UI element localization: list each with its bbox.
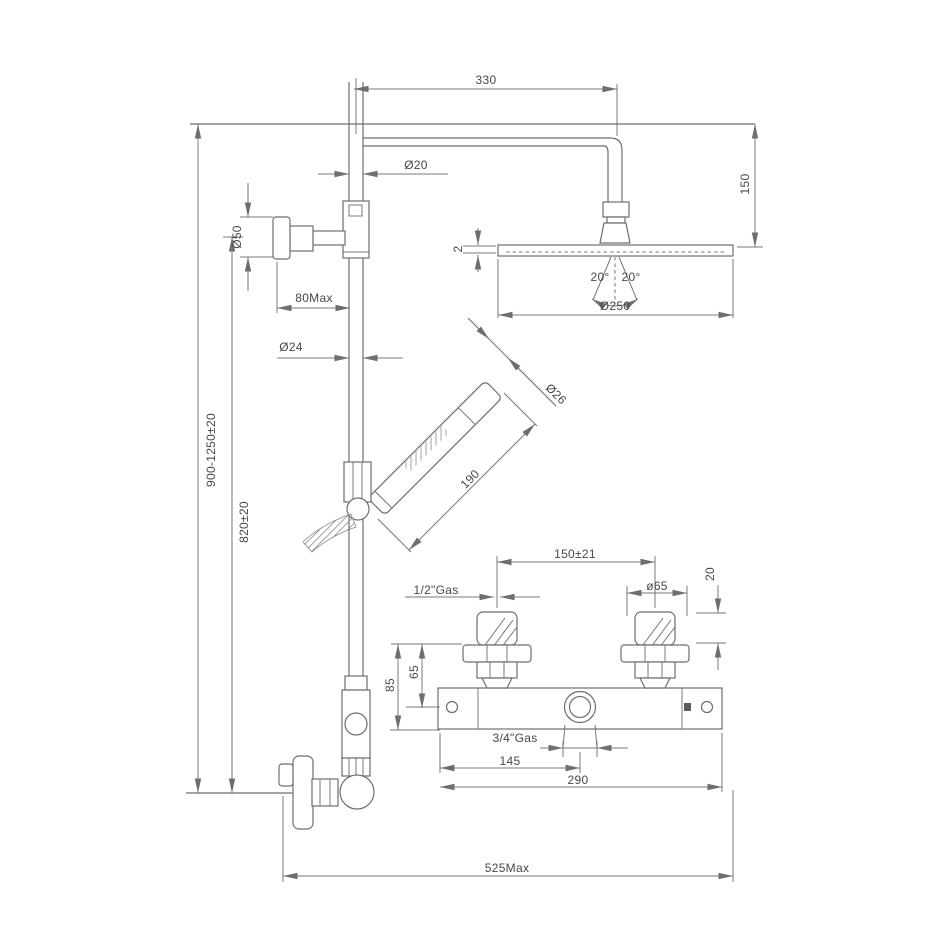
label-handle-dia: ø65 — [646, 579, 668, 593]
knob-face — [273, 217, 290, 259]
elbow-hex — [312, 779, 338, 806]
label-spray-angle-left: 20° — [590, 270, 609, 284]
label-drop-height: 150 — [738, 174, 752, 195]
label-outlet-offset: 145 — [500, 754, 521, 768]
label-arm-pipe-dia: Ø20 — [404, 158, 428, 172]
label-handset-dia: Ø26 — [543, 381, 570, 408]
label-outlet-thread: 3/4"Gas — [492, 731, 537, 745]
left-knob-stack — [477, 662, 517, 678]
right-control-knob — [621, 612, 689, 688]
knob-stem — [290, 226, 313, 251]
label-riser-dia: Ø24 — [279, 340, 303, 354]
valve-button — [684, 703, 691, 711]
label-inlet-thread: 1/2"Gas — [413, 583, 458, 597]
diverter-neck — [345, 676, 367, 690]
label-knob-dia: Ø50 — [230, 225, 244, 249]
upper-knob-assembly — [273, 201, 369, 259]
dim-d50-ticks — [240, 217, 273, 257]
shower-head-outline — [498, 245, 733, 256]
label-valve-height-center: 65 — [407, 665, 421, 679]
right-knob-base — [640, 678, 670, 688]
shower-hose — [303, 514, 356, 552]
diverter-assembly — [279, 676, 374, 829]
shower-technical-drawing: 330 Ø20 Ø50 80Max 2 150 20° 20° Ø250 Ø24… — [0, 0, 950, 950]
arm-outer-edge — [363, 138, 622, 202]
label-valve-height-total: 85 — [383, 678, 397, 692]
handheld-shower — [368, 381, 502, 515]
head-mount-cone — [600, 223, 630, 243]
label-top-width: 330 — [476, 73, 497, 87]
drawing-stage: 330 Ø20 Ø50 80Max 2 150 20° 20° Ø250 Ø24… — [0, 0, 950, 950]
mixer-valve — [438, 612, 722, 748]
label-spray-angle-right: 20° — [621, 270, 640, 284]
arm-collar — [607, 217, 625, 223]
arm-nut — [603, 202, 629, 217]
label-valve-centers: 150±21 — [554, 547, 596, 561]
overhead-shower-head — [498, 245, 733, 306]
right-knob-flange — [621, 645, 689, 662]
handset-slider-bracket — [303, 462, 371, 552]
left-knob-flange — [463, 645, 531, 662]
dim-2-ticks — [463, 246, 496, 253]
dim-d26-arrow-b — [508, 358, 556, 406]
label-overall-height: 900-1250±20 — [204, 413, 218, 487]
riser-housing — [343, 201, 369, 258]
slider-clamp — [344, 462, 371, 502]
dim-20-ticks — [696, 613, 726, 643]
label-knob-depth: 80Max — [295, 291, 333, 305]
left-control-knob — [463, 612, 531, 688]
ball-joint — [340, 775, 374, 809]
label-max-width: 525Max — [485, 861, 530, 875]
diverter-body — [342, 690, 370, 758]
handset-body — [368, 381, 502, 515]
knob-shaft — [313, 231, 345, 245]
dimension-lines — [198, 84, 763, 882]
label-handle-offset: 20 — [703, 567, 717, 581]
dim-150-21-exts — [497, 556, 655, 608]
right-knob-stack — [635, 662, 675, 678]
left-knob-base — [482, 678, 512, 688]
label-head-dia: Ø250 — [600, 299, 631, 313]
wall-flange-tab — [279, 764, 293, 786]
label-head-thickness: 2 — [451, 245, 465, 252]
label-valve-width: 290 — [568, 773, 589, 787]
label-riser-height: 820±20 — [237, 501, 251, 543]
dimension-labels: 330 Ø20 Ø50 80Max 2 150 20° 20° Ø250 Ø24… — [204, 73, 752, 875]
dim-d26-arrow-a — [468, 318, 489, 339]
label-handset-length: 190 — [458, 467, 483, 492]
wall-flange — [293, 756, 313, 829]
